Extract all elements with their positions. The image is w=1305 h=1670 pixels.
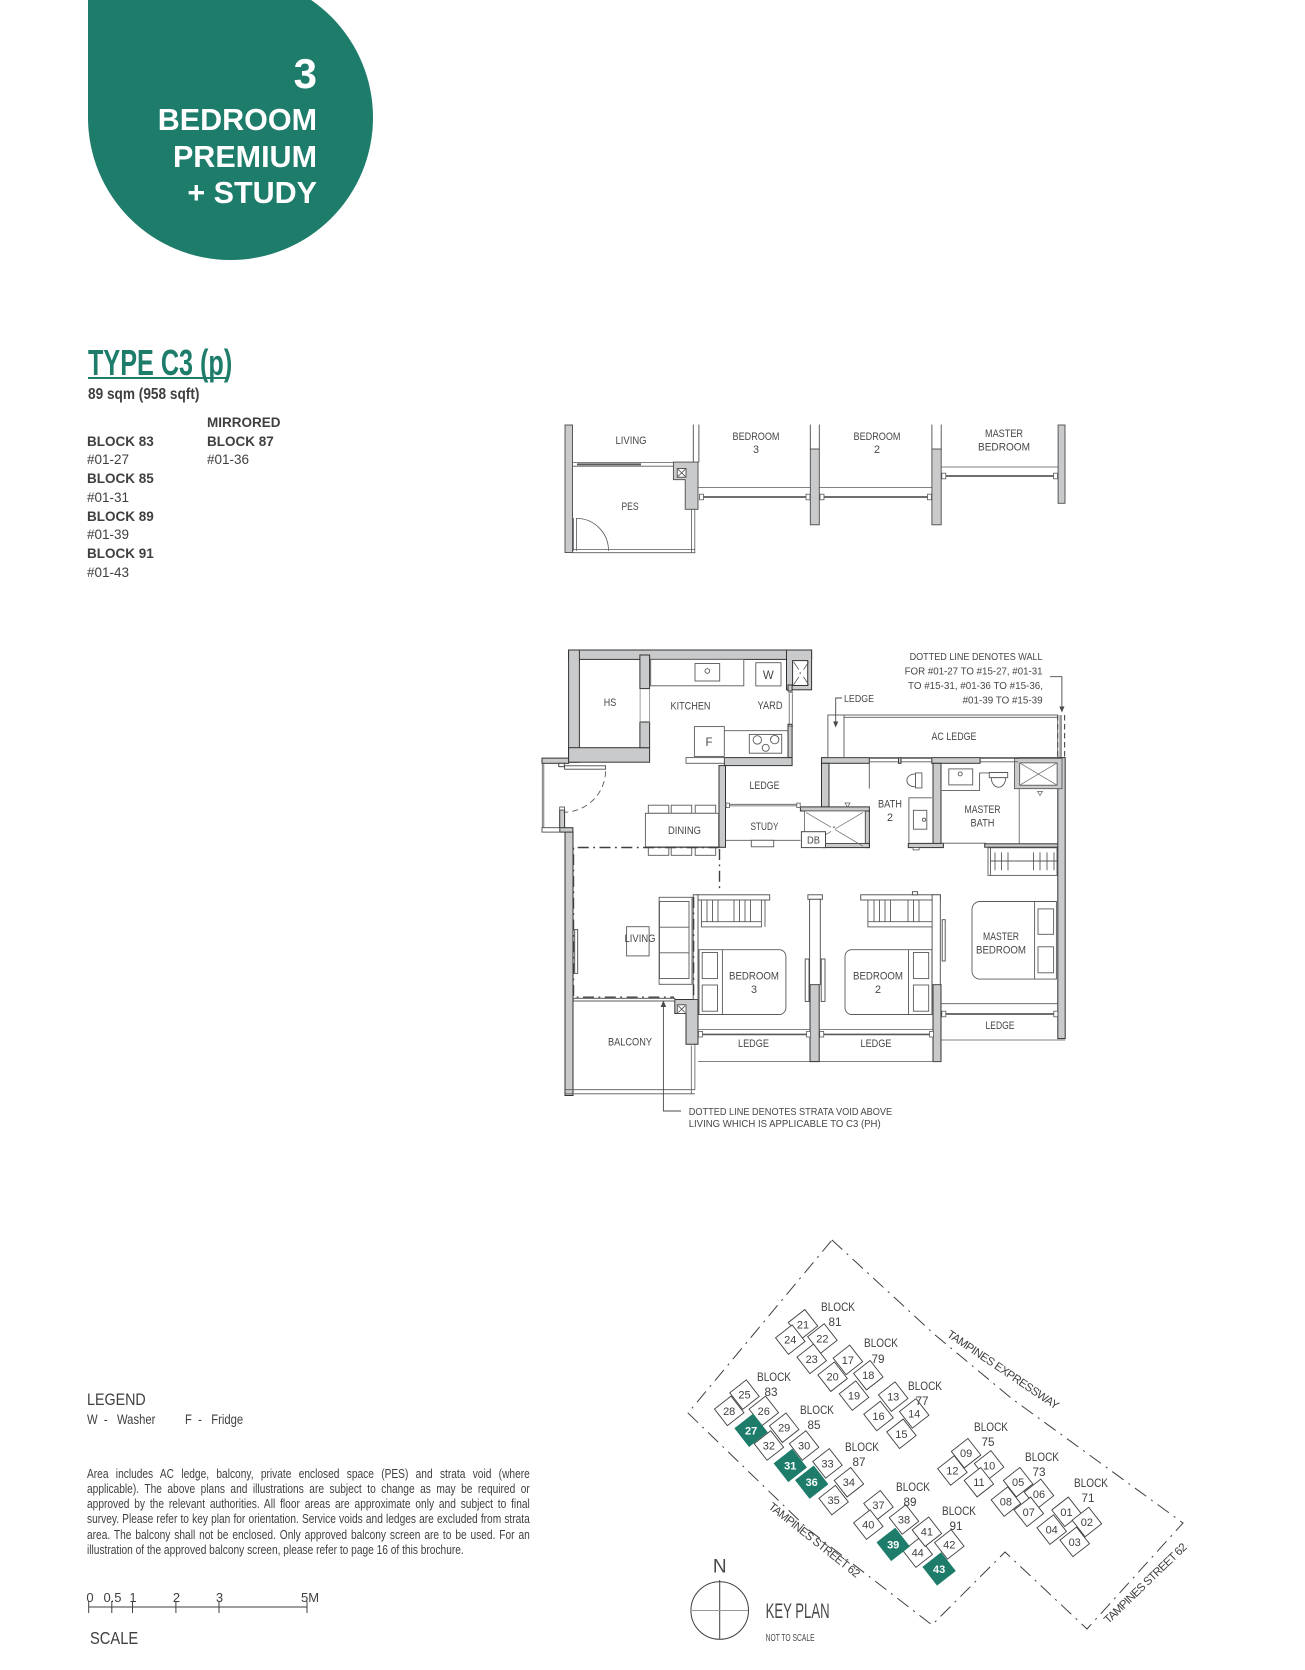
- svg-text:BLOCK: BLOCK: [864, 1336, 898, 1350]
- svg-text:1: 1: [129, 1590, 136, 1605]
- svg-text:TAMPINES STREET 62: TAMPINES STREET 62: [766, 1501, 862, 1581]
- svg-text:20: 20: [826, 1372, 838, 1384]
- svg-text:2: 2: [887, 812, 893, 824]
- svg-text:3: 3: [216, 1590, 223, 1605]
- svg-text:MASTER: MASTER: [985, 428, 1023, 440]
- svg-text:HS: HS: [604, 697, 617, 709]
- svg-text:BEDROOM: BEDROOM: [729, 971, 779, 983]
- svg-text:0.5: 0.5: [103, 1590, 121, 1605]
- svg-text:FOR #01-27 TO #15-27, #01-31: FOR #01-27 TO #15-27, #01-31: [905, 666, 1043, 678]
- svg-text:LIVING: LIVING: [625, 933, 656, 945]
- svg-text:BLOCK: BLOCK: [757, 1370, 791, 1384]
- svg-text:BALCONY: BALCONY: [608, 1037, 652, 1049]
- svg-text:DOTTED LINE DENOTES STRATA VOI: DOTTED LINE DENOTES STRATA VOID ABOVE: [689, 1106, 893, 1118]
- svg-text:05: 05: [1012, 1477, 1024, 1489]
- svg-text:BEDROOM: BEDROOM: [976, 945, 1026, 957]
- svg-text:LIVING: LIVING: [616, 435, 647, 447]
- svg-text:MASTER: MASTER: [965, 804, 1001, 816]
- svg-text:BEDROOM: BEDROOM: [978, 442, 1030, 454]
- svg-text:BLOCK: BLOCK: [1074, 1476, 1108, 1490]
- svg-text:39: 39: [887, 1539, 899, 1551]
- svg-text:5M: 5M: [301, 1590, 319, 1605]
- svg-text:28: 28: [723, 1406, 735, 1418]
- svg-text:87: 87: [853, 1455, 866, 1469]
- svg-text:42: 42: [943, 1539, 955, 1551]
- svg-text:KEY PLAN: KEY PLAN: [766, 1600, 830, 1623]
- svg-text:35: 35: [827, 1495, 839, 1507]
- svg-text:TO #15-31, #01-36 TO #15-36,: TO #15-31, #01-36 TO #15-36,: [908, 680, 1043, 692]
- svg-text:89: 89: [904, 1495, 917, 1509]
- svg-text:BEDROOM: BEDROOM: [854, 431, 901, 443]
- svg-text:07: 07: [1023, 1507, 1035, 1519]
- svg-text:09: 09: [960, 1448, 972, 1460]
- svg-text:34: 34: [843, 1477, 855, 1489]
- svg-text:06: 06: [1033, 1489, 1045, 1501]
- svg-text:73: 73: [1033, 1465, 1046, 1479]
- svg-text:BEDROOM: BEDROOM: [733, 431, 780, 443]
- svg-text:26: 26: [758, 1406, 770, 1418]
- svg-text:LEDGE: LEDGE: [861, 1038, 892, 1050]
- svg-text:16: 16: [872, 1411, 884, 1423]
- svg-text:36: 36: [806, 1477, 818, 1489]
- svg-text:3: 3: [753, 444, 759, 456]
- svg-text:32: 32: [763, 1441, 775, 1453]
- svg-text:BATH: BATH: [878, 799, 902, 811]
- svg-text:83: 83: [765, 1385, 778, 1399]
- svg-text:2: 2: [875, 984, 881, 996]
- svg-text:DB: DB: [807, 836, 820, 847]
- svg-text:08: 08: [1000, 1497, 1012, 1509]
- svg-text:BLOCK: BLOCK: [845, 1440, 879, 1454]
- svg-text:BLOCK: BLOCK: [908, 1379, 942, 1393]
- svg-text:02: 02: [1081, 1517, 1093, 1529]
- svg-text:11: 11: [973, 1477, 984, 1489]
- svg-text:44: 44: [912, 1548, 924, 1560]
- svg-text:79: 79: [872, 1352, 885, 1366]
- svg-text:W: W: [763, 670, 774, 682]
- svg-text:23: 23: [806, 1354, 818, 1366]
- svg-text:33: 33: [821, 1458, 833, 1470]
- svg-text:BLOCK: BLOCK: [821, 1300, 855, 1314]
- svg-text:41: 41: [921, 1527, 933, 1539]
- svg-text:31: 31: [784, 1460, 796, 1472]
- svg-text:18: 18: [862, 1370, 874, 1382]
- svg-text:19: 19: [848, 1391, 860, 1403]
- svg-text:91: 91: [950, 1519, 963, 1533]
- svg-text:MASTER: MASTER: [983, 931, 1019, 943]
- svg-text:37: 37: [872, 1500, 884, 1512]
- svg-text:LEDGE: LEDGE: [986, 1020, 1015, 1032]
- svg-text:21: 21: [797, 1319, 809, 1331]
- svg-text:BLOCK: BLOCK: [800, 1403, 834, 1417]
- svg-text:TAMPINES EXPRESSWAY: TAMPINES EXPRESSWAY: [945, 1329, 1061, 1413]
- svg-text:10: 10: [983, 1460, 995, 1472]
- svg-text:81: 81: [829, 1315, 842, 1329]
- svg-text:12: 12: [946, 1466, 958, 1478]
- svg-text:13: 13: [887, 1392, 899, 1404]
- svg-text:22: 22: [816, 1334, 828, 1346]
- svg-text:15: 15: [895, 1429, 907, 1441]
- svg-text:STUDY: STUDY: [751, 821, 779, 833]
- svg-text:TAMPINES STREET 62: TAMPINES STREET 62: [1102, 1541, 1189, 1626]
- svg-text:F: F: [705, 737, 712, 749]
- svg-text:29: 29: [778, 1423, 790, 1435]
- svg-text:04: 04: [1046, 1525, 1058, 1537]
- svg-text:25: 25: [738, 1390, 750, 1402]
- svg-text:PES: PES: [622, 501, 639, 513]
- svg-text:BEDROOM: BEDROOM: [853, 971, 903, 983]
- svg-text:17: 17: [842, 1355, 854, 1367]
- svg-text:DINING: DINING: [668, 825, 701, 837]
- svg-text:01: 01: [1060, 1507, 1072, 1519]
- svg-text:30: 30: [798, 1441, 810, 1453]
- svg-text:AC LEDGE: AC LEDGE: [932, 731, 977, 743]
- svg-text:BATH: BATH: [971, 818, 995, 830]
- svg-text:NOT TO SCALE: NOT TO SCALE: [766, 1633, 815, 1644]
- svg-text:BLOCK: BLOCK: [896, 1480, 930, 1494]
- svg-text:38: 38: [898, 1515, 910, 1527]
- svg-text:3: 3: [751, 984, 757, 996]
- svg-text:YARD: YARD: [758, 700, 783, 712]
- svg-text:BLOCK: BLOCK: [942, 1504, 976, 1518]
- svg-text:BLOCK: BLOCK: [974, 1420, 1008, 1434]
- svg-text:85: 85: [808, 1418, 821, 1432]
- svg-text:27: 27: [745, 1425, 757, 1437]
- svg-text:2: 2: [874, 444, 880, 456]
- svg-text:LEDGE: LEDGE: [738, 1038, 769, 1050]
- svg-text:40: 40: [862, 1520, 874, 1532]
- svg-text:24: 24: [784, 1335, 796, 1347]
- svg-text:77: 77: [916, 1394, 929, 1408]
- svg-text:LEDGE: LEDGE: [750, 780, 780, 792]
- svg-text:03: 03: [1069, 1537, 1081, 1549]
- svg-text:DOTTED LINE DENOTES WALL: DOTTED LINE DENOTES WALL: [910, 651, 1043, 663]
- svg-text:2: 2: [173, 1590, 180, 1605]
- svg-text:N: N: [713, 1557, 727, 1578]
- svg-text:LEDGE: LEDGE: [844, 693, 874, 705]
- svg-text:KITCHEN: KITCHEN: [671, 701, 711, 713]
- svg-text:14: 14: [908, 1408, 920, 1420]
- svg-text:BLOCK: BLOCK: [1025, 1450, 1059, 1464]
- svg-text:43: 43: [933, 1564, 945, 1576]
- svg-text:LIVING WHICH IS APPLICABLE TO: LIVING WHICH IS APPLICABLE TO C3 (PH): [689, 1118, 881, 1130]
- svg-text:#01-39 TO #15-39: #01-39 TO #15-39: [963, 695, 1043, 707]
- svg-text:71: 71: [1082, 1491, 1095, 1505]
- svg-text:75: 75: [982, 1435, 995, 1449]
- svg-text:0: 0: [86, 1590, 93, 1605]
